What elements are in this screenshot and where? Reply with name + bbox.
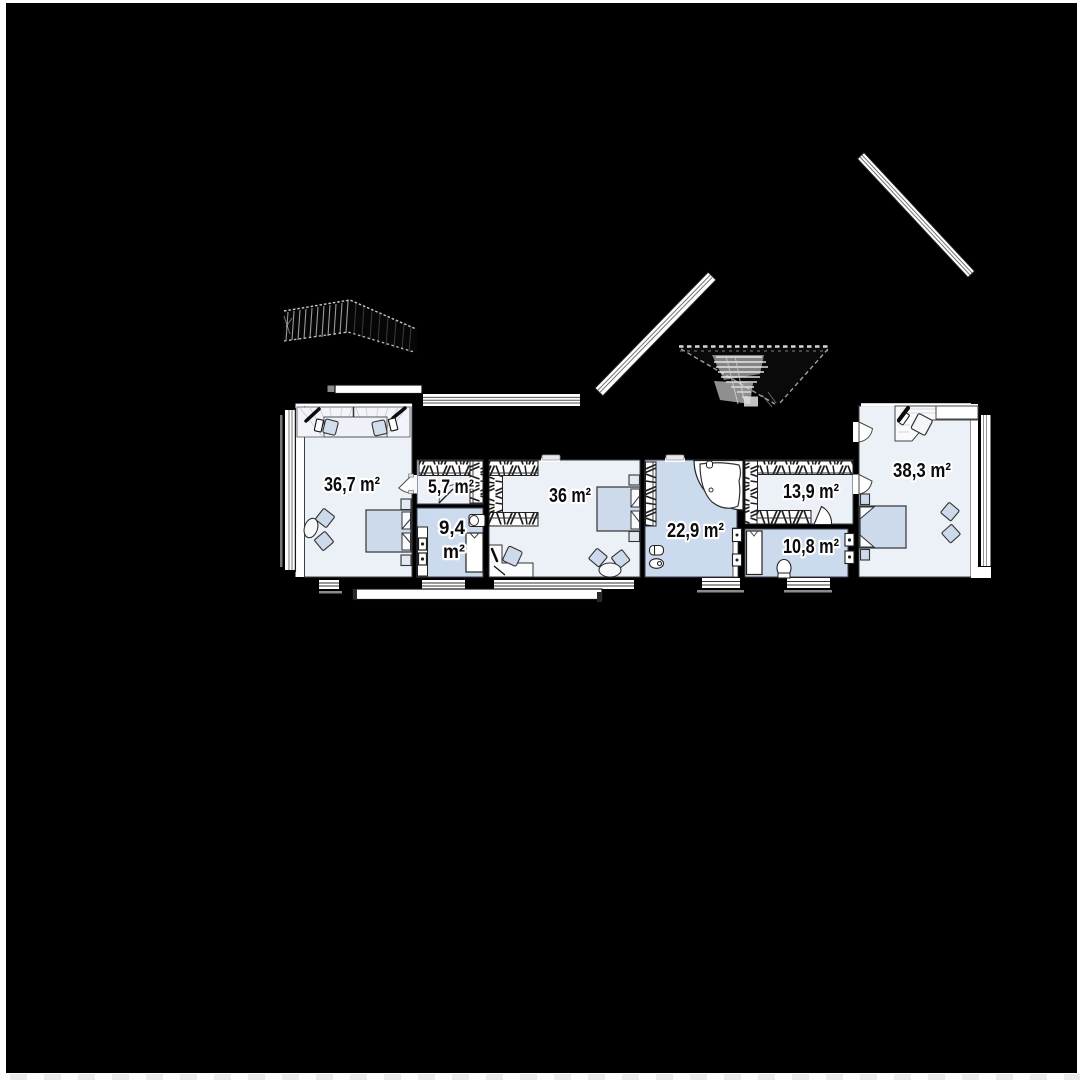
svg-text:36 m²: 36 m² bbox=[549, 485, 591, 507]
svg-text:10,8 m²: 10,8 m² bbox=[783, 536, 839, 558]
svg-text:9,4: 9,4 bbox=[439, 518, 465, 539]
svg-text:m²: m² bbox=[443, 542, 465, 563]
svg-text:36,7 m²: 36,7 m² bbox=[324, 474, 380, 496]
svg-text:13,9 m²: 13,9 m² bbox=[783, 481, 839, 503]
svg-text:22,9 m²: 22,9 m² bbox=[667, 520, 724, 542]
svg-text:38,3 m²: 38,3 m² bbox=[893, 460, 951, 482]
svg-text:5,7 m²: 5,7 m² bbox=[428, 477, 474, 498]
